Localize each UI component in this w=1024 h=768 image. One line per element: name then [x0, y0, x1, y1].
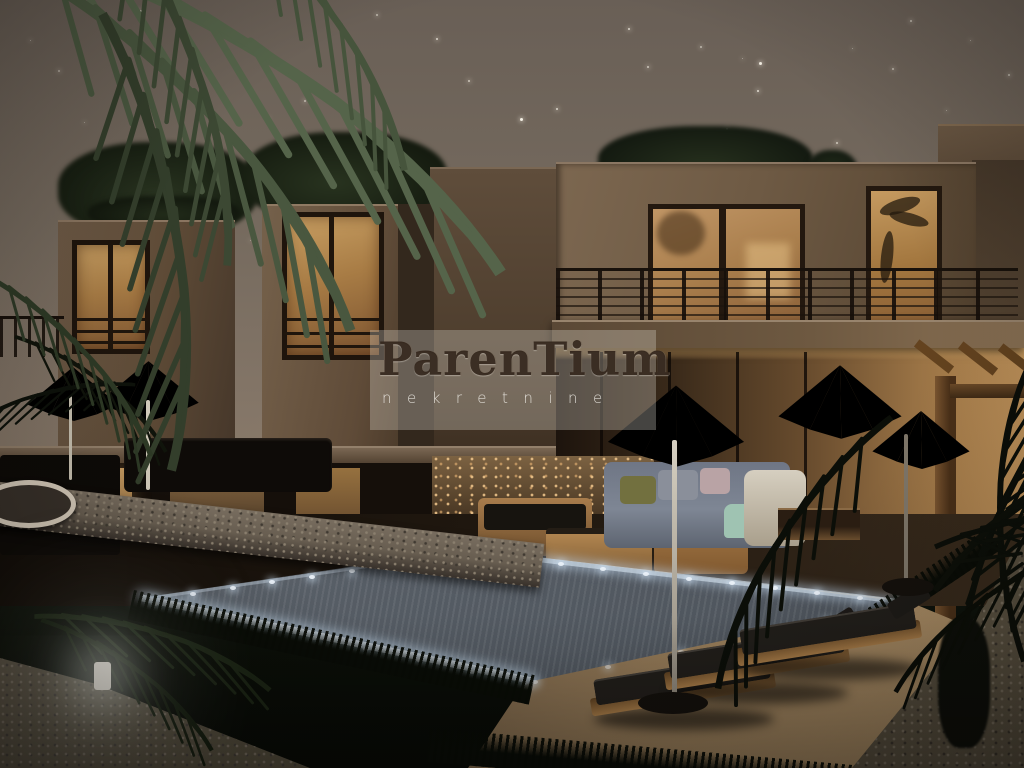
night-villa-render: ParenTium nekretnine: [0, 0, 1024, 768]
watermark-subtitle: nekretnine: [382, 389, 656, 407]
watermark-brand: ParenTium: [378, 336, 656, 382]
watermark: ParenTium nekretnine: [370, 330, 656, 430]
